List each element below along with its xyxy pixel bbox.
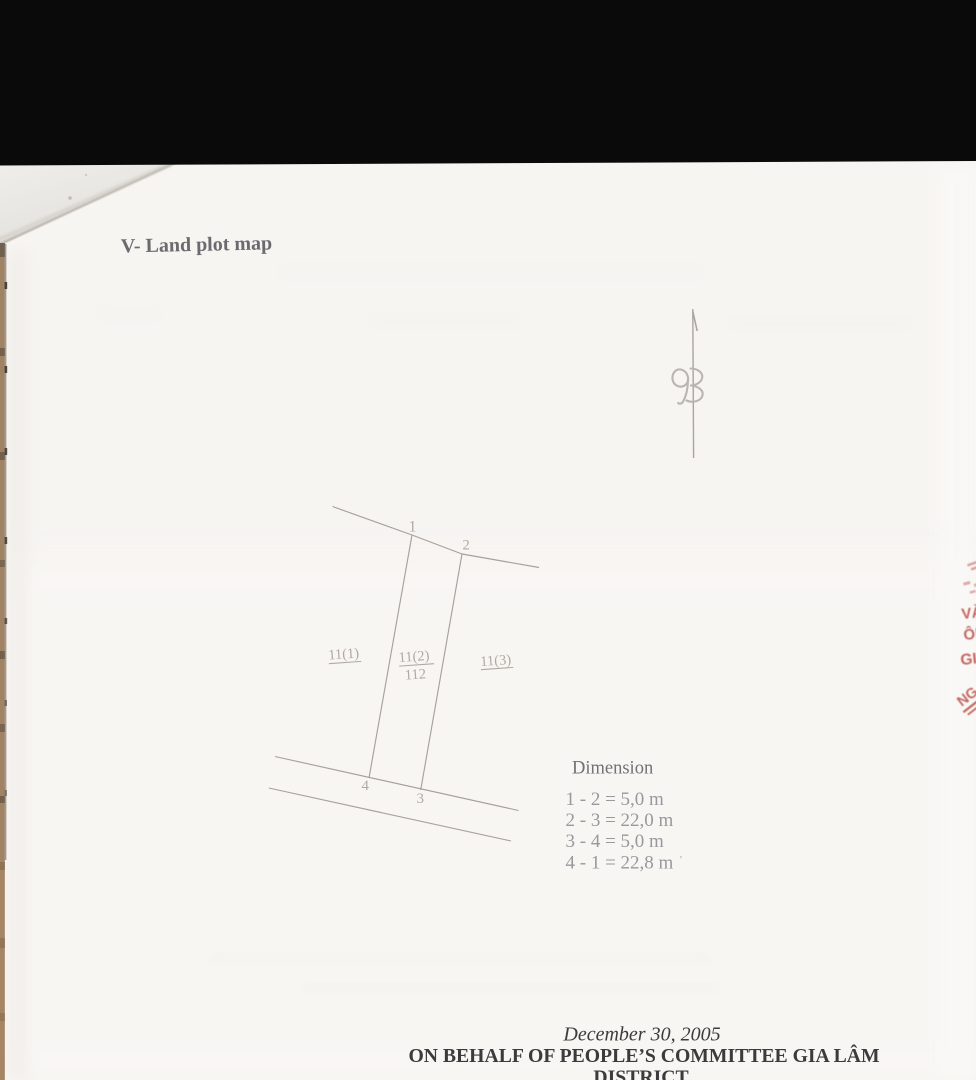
svg-text:’: ’ bbox=[679, 854, 683, 866]
svg-text:December 30, 2005: December 30, 2005 bbox=[562, 1024, 720, 1046]
svg-text:112: 112 bbox=[404, 666, 426, 683]
svg-text:2: 2 bbox=[463, 538, 470, 554]
svg-text:2 - 3 = 22,0 m: 2 - 3 = 22,0 m bbox=[566, 810, 674, 831]
svg-text:3: 3 bbox=[417, 791, 425, 807]
svg-text:11(2): 11(2) bbox=[398, 648, 430, 666]
svg-text:ON BEHALF OF PEOPLE’S COMMITTE: ON BEHALF OF PEOPLE’S COMMITTEE GIA LÂM bbox=[408, 1045, 879, 1067]
svg-text:4: 4 bbox=[362, 778, 370, 794]
svg-text:3 - 4 = 5,0 m: 3 - 4 = 5,0 m bbox=[566, 831, 665, 852]
svg-text:4 - 1 = 22,8 m: 4 - 1 = 22,8 m bbox=[566, 853, 674, 874]
svg-text:ÔI: ÔI bbox=[963, 624, 976, 644]
svg-text:11(1): 11(1) bbox=[328, 646, 360, 664]
svg-text:1 - 2 = 5,0 m: 1 - 2 = 5,0 m bbox=[566, 789, 665, 810]
svg-text:1: 1 bbox=[409, 519, 417, 536]
svg-text:GI: GI bbox=[960, 650, 976, 669]
svg-text:DISTRICT: DISTRICT bbox=[593, 1067, 688, 1080]
svg-text:Dimension: Dimension bbox=[572, 759, 653, 779]
svg-text:VÀ: VÀ bbox=[961, 604, 976, 623]
svg-text:V- Land plot map: V- Land plot map bbox=[121, 232, 273, 257]
